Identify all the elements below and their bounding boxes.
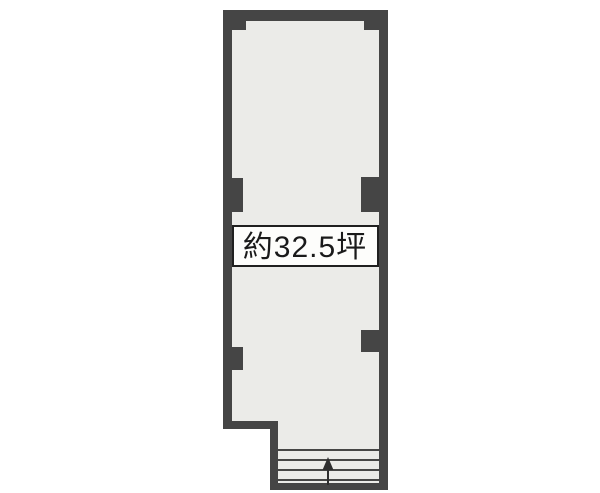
pillar-lower-left xyxy=(223,347,243,370)
pillar-top-right xyxy=(364,10,388,30)
floorplan-drawing: 約32.5坪 xyxy=(0,0,600,493)
pillar-mid-right xyxy=(361,177,388,212)
pillar-lower-right xyxy=(361,330,388,352)
area-label: 約32.5坪 xyxy=(243,231,367,264)
pillar-mid-left xyxy=(223,178,243,212)
area-label-box: 約32.5坪 xyxy=(233,226,378,266)
pillar-top-left xyxy=(223,10,246,30)
floorplan-canvas: 約32.5坪 xyxy=(0,0,600,493)
